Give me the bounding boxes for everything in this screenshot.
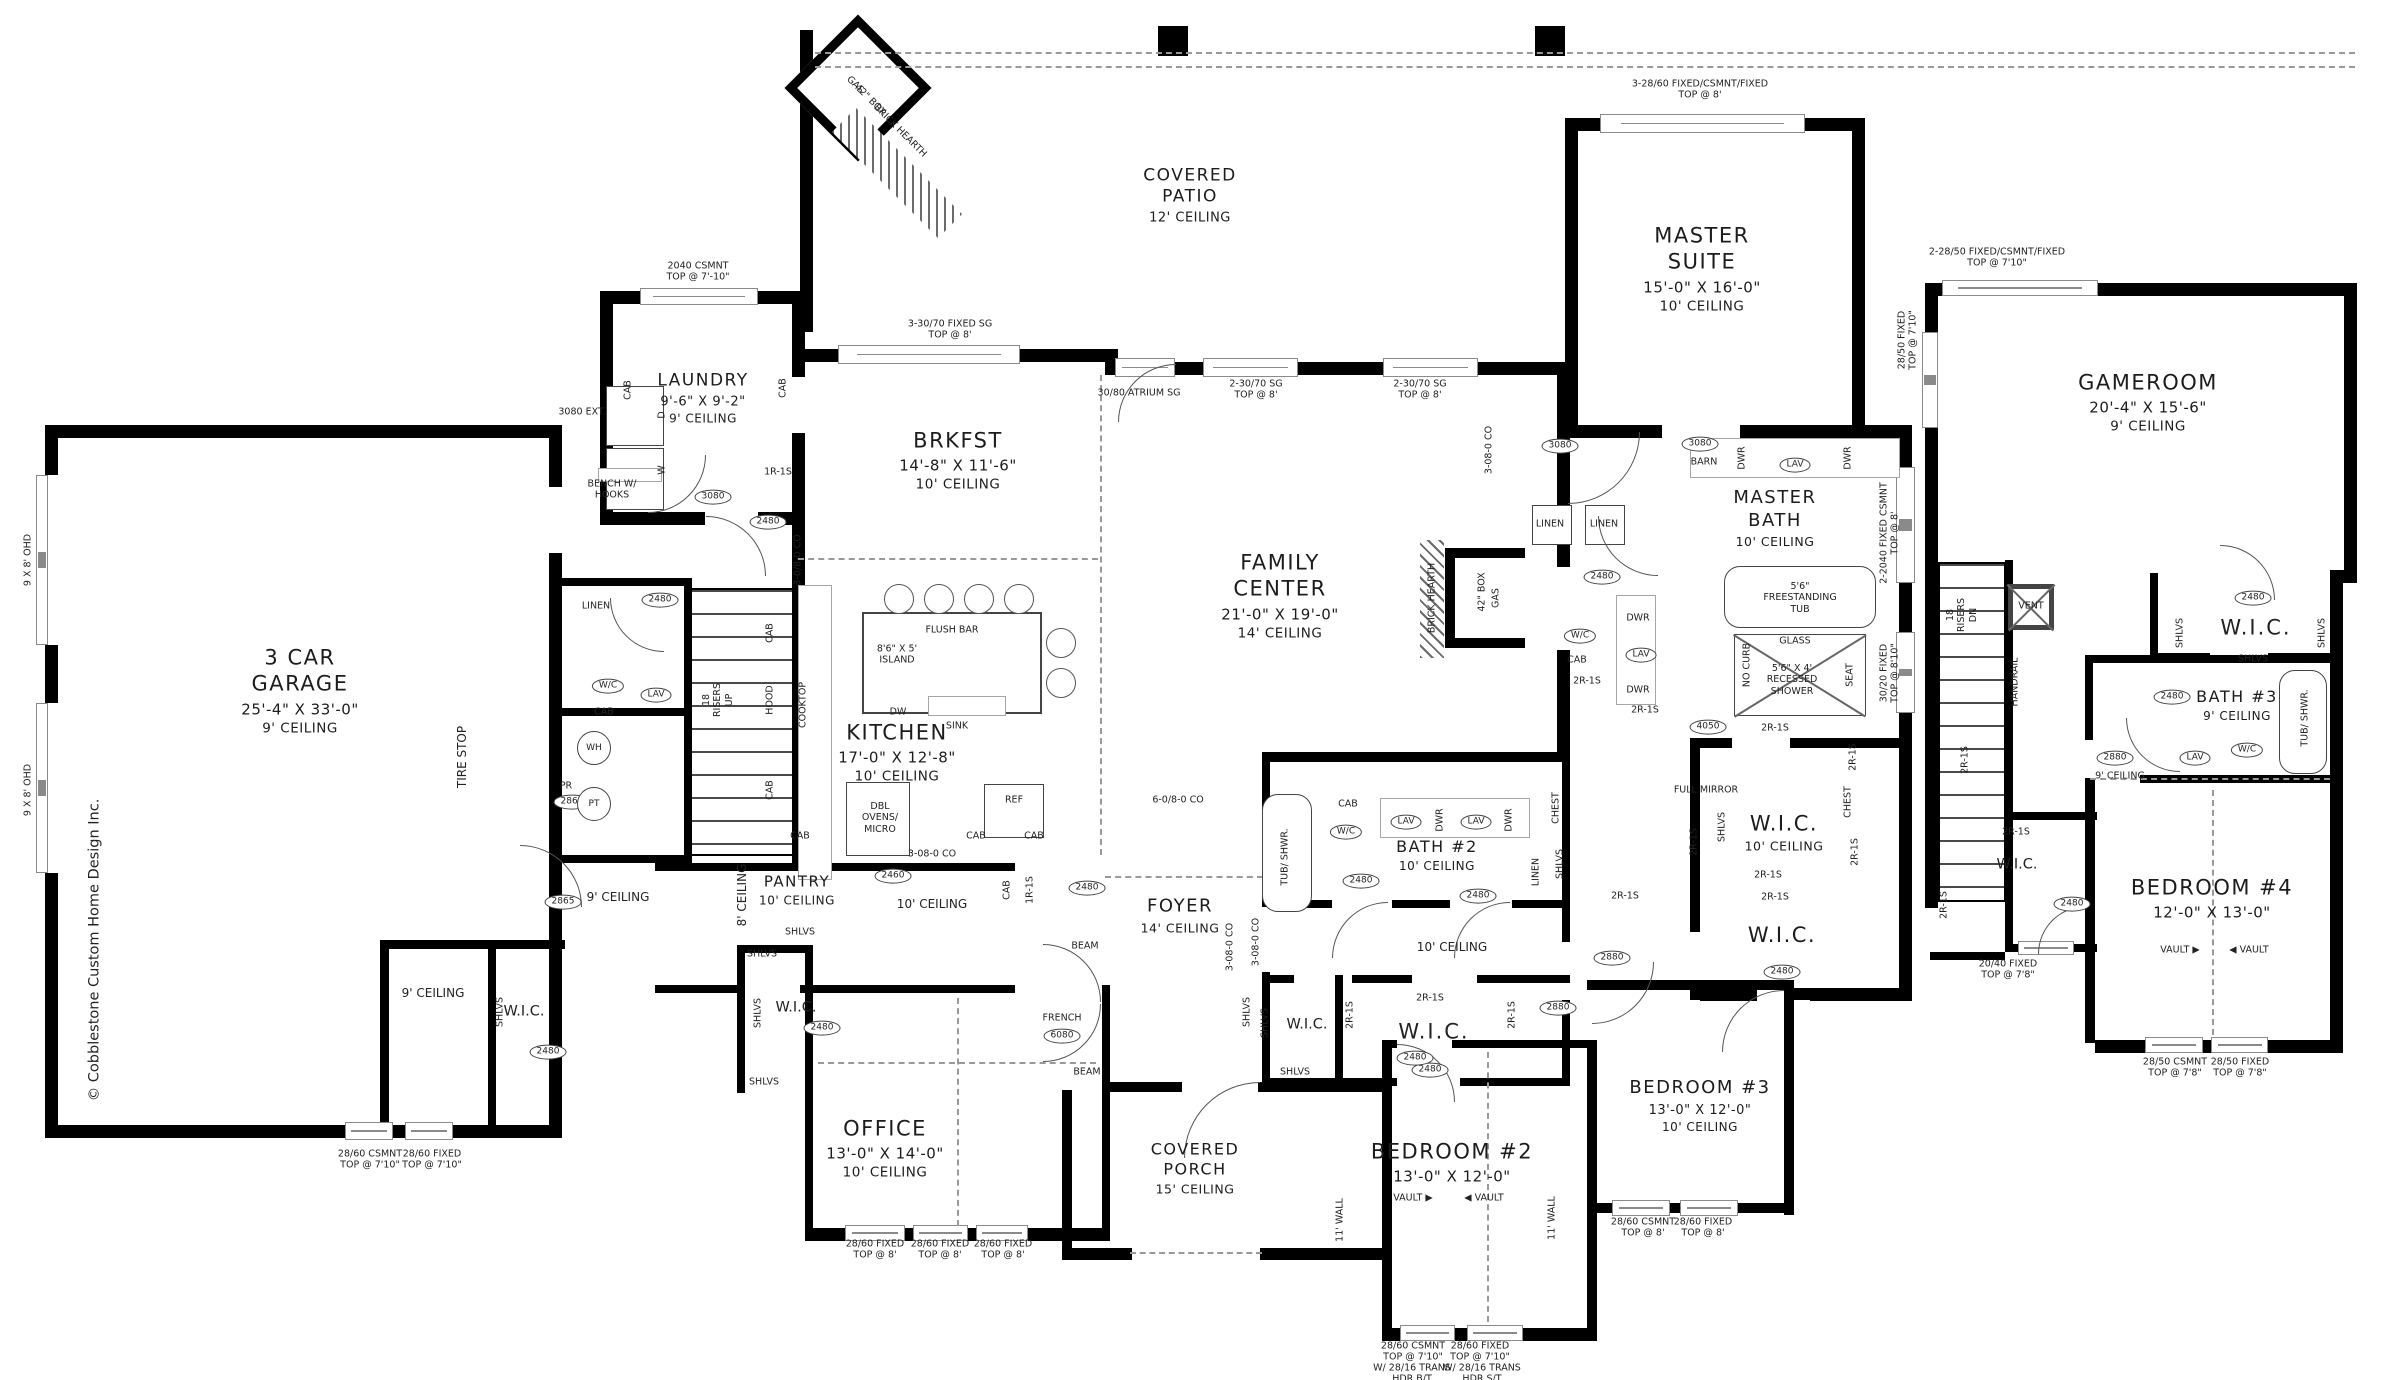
room-name: BEDROOM #4 bbox=[2131, 874, 2293, 900]
annotation: 3-08-0 CO bbox=[1250, 918, 1261, 966]
room-ceiling: 14' CEILING bbox=[1141, 920, 1220, 935]
wall bbox=[45, 425, 562, 438]
room-dims: 14'-8" X 11'-6" bbox=[899, 457, 1016, 475]
room-dims: 9'-6" X 9'-2" bbox=[657, 395, 748, 410]
annotation: 2-30/70 SG TOP @ 8' bbox=[1393, 379, 1446, 402]
room-name: BRKFST bbox=[899, 427, 1016, 453]
garage-door bbox=[36, 703, 48, 873]
room-label-laundry: LAUNDRY 9'-6" X 9'-2" 9' CEILING bbox=[657, 370, 748, 425]
annotation: 2R-1S bbox=[1959, 746, 1970, 774]
wall bbox=[562, 708, 688, 716]
wall bbox=[1102, 1082, 1182, 1092]
annotation: 28/60 FIXED TOP @ 8' bbox=[911, 1239, 970, 1262]
annotation: 3-30/70 FIXED SG TOP @ 8' bbox=[908, 319, 992, 342]
annotation: SHLVS bbox=[1259, 1008, 1270, 1038]
annotation: 9' CEILING bbox=[587, 890, 650, 904]
wall bbox=[45, 645, 58, 703]
wall bbox=[1925, 283, 1938, 332]
annotation: 8' CEILING bbox=[735, 864, 749, 927]
room-dims: 25'-4" X 33'-0" bbox=[241, 700, 358, 718]
room-ceiling: 10' CEILING bbox=[759, 893, 835, 907]
annotation: 3080 bbox=[1682, 437, 1719, 452]
annotation: 28/60 FIXED TOP @ 7'10" bbox=[1450, 1341, 1510, 1364]
wall bbox=[1852, 118, 1865, 430]
annotation: CAB bbox=[1024, 830, 1044, 841]
wall bbox=[655, 863, 1015, 871]
annotation: LINEN bbox=[1590, 518, 1618, 529]
annotation: 2R-1S bbox=[1938, 891, 1949, 919]
annotation: 2R-1S bbox=[1754, 869, 1782, 880]
annotation: 28/60 FIXED TOP @ 7'10" bbox=[402, 1149, 462, 1172]
room-label-garage: 3 CAR GARAGE 25'-4" X 33'-0" 9' CEILING bbox=[241, 644, 358, 736]
room-name: LAUNDRY bbox=[657, 370, 748, 391]
wall bbox=[1262, 752, 1570, 762]
window bbox=[345, 1122, 393, 1140]
wall bbox=[1445, 548, 1455, 648]
annotation: 3080 bbox=[1542, 439, 1579, 454]
wall bbox=[562, 855, 690, 863]
wall bbox=[1925, 483, 1938, 908]
wall bbox=[1460, 1078, 1570, 1086]
annotation: TIRE STOP bbox=[455, 726, 469, 788]
wall bbox=[1587, 1040, 1597, 1338]
room-name: W.I.C. bbox=[1745, 810, 1824, 836]
annotation: SHLVS bbox=[2174, 618, 2185, 648]
annotation: DWR bbox=[1626, 684, 1649, 695]
annotation: 3080 bbox=[695, 490, 732, 505]
annotation: DW bbox=[890, 706, 907, 717]
wall bbox=[1899, 748, 1912, 1000]
annotation: SHLVS bbox=[1280, 1066, 1310, 1077]
wall bbox=[2085, 655, 2093, 740]
ceiling-break bbox=[957, 998, 959, 1226]
annotation: 2480 bbox=[750, 515, 787, 530]
annotation: 28/50 CSMNT TOP @ 7'8" bbox=[2143, 1057, 2207, 1080]
annotation: 2-28/50 FIXED/CSMNT/FIXED TOP @ 7'10" bbox=[1929, 247, 2065, 270]
annotation: 1R-1S bbox=[1024, 876, 1035, 904]
wall bbox=[1738, 1203, 1794, 1213]
porch-opening bbox=[1130, 1252, 1262, 1254]
annotation: 1R-1S bbox=[764, 466, 792, 477]
wall bbox=[600, 291, 645, 304]
floor-plan: 3 CAR GARAGE 25'-4" X 33'-0" 9' CEILING … bbox=[0, 0, 2396, 1380]
annotation: DBL OVENS/ MICRO bbox=[862, 801, 898, 835]
wall bbox=[1260, 1248, 1392, 1260]
annotation: CAB bbox=[594, 706, 614, 717]
window bbox=[1400, 1325, 1455, 1341]
annotation: 2R-1S bbox=[1573, 675, 1601, 686]
annotation: 28/60 FIXED TOP @ 8' bbox=[846, 1239, 905, 1262]
annotation: SHLVS bbox=[752, 998, 763, 1028]
wall bbox=[549, 425, 562, 487]
annotation: CAB bbox=[966, 830, 986, 841]
annotation: 2R-1S bbox=[1847, 743, 1858, 771]
room-dims: 20'-4" X 15'-6" bbox=[2078, 399, 2218, 417]
annotation: 2R-1S bbox=[1849, 838, 1860, 866]
bar-stool bbox=[884, 584, 914, 614]
annotation: 2480 bbox=[1764, 965, 1801, 980]
room-label-brkfst: BRKFST 14'-8" X 11'-6" 10' CEILING bbox=[899, 427, 1016, 492]
wall bbox=[1352, 975, 1412, 983]
annotation: W.I.C. bbox=[1287, 1016, 1328, 1033]
french-door-arc bbox=[1043, 944, 1101, 1002]
annotation: 4050 bbox=[1690, 720, 1727, 735]
annotation: GAS bbox=[1490, 588, 1501, 608]
annotation: W.I.C. bbox=[1398, 1019, 1469, 1044]
washer bbox=[606, 386, 664, 446]
annotation: 18 RISERS UP bbox=[701, 683, 735, 717]
annotation: CHEST bbox=[1842, 786, 1853, 818]
room-name: PANTRY bbox=[759, 873, 835, 892]
wall bbox=[1784, 980, 1794, 1215]
annotation: LINEN bbox=[582, 600, 610, 611]
annotation: W/C bbox=[592, 679, 624, 694]
door-arc bbox=[648, 455, 706, 513]
annotation: 2460 bbox=[875, 869, 912, 884]
annotation: PR bbox=[560, 780, 572, 791]
annotation: SHLVS bbox=[747, 948, 777, 959]
room-name: KITCHEN bbox=[838, 719, 955, 745]
room-name: BEDROOM #3 bbox=[1629, 1077, 1770, 1100]
room-name: FOYER bbox=[1141, 895, 1220, 918]
window bbox=[1600, 114, 1805, 133]
room-ceiling: 10' CEILING bbox=[1396, 859, 1478, 873]
room-name: BEDROOM #2 bbox=[1371, 1138, 1533, 1164]
annotation: 30/80 ATRIUM SG bbox=[1098, 387, 1181, 398]
room-ceiling: 10' CEILING bbox=[826, 1165, 943, 1181]
annotation: LAV bbox=[641, 688, 672, 703]
wall bbox=[1335, 975, 1343, 1085]
annotation: 10' CEILING bbox=[1417, 940, 1487, 954]
annotation: W.I.C. bbox=[504, 1003, 545, 1020]
window bbox=[1467, 1325, 1523, 1341]
room-name: FAMILY CENTER bbox=[1221, 549, 1338, 602]
annotation: SHLVS bbox=[2238, 653, 2268, 664]
annotation: FLUSH BAR bbox=[925, 624, 978, 635]
annotation: W.I.C. bbox=[1997, 856, 2038, 873]
annotation: VAULT ▶ bbox=[1393, 1192, 1432, 1203]
room-label-bath2: BATH #2 10' CEILING bbox=[1396, 837, 1478, 873]
room-name: GAMEROOM bbox=[2078, 369, 2218, 395]
wall bbox=[800, 985, 1015, 993]
annotation: 2R-1S bbox=[2002, 826, 2030, 837]
room-ceiling: 10' CEILING bbox=[1629, 1119, 1770, 1133]
annotation: 2R-1S bbox=[1611, 890, 1639, 901]
annotation: CAB bbox=[777, 378, 788, 398]
wall bbox=[1258, 1082, 1392, 1092]
wall bbox=[600, 512, 705, 525]
annotation: VAULT ▶ bbox=[2160, 944, 2199, 955]
annotation: SEAT bbox=[1844, 663, 1855, 687]
bar-stool bbox=[964, 584, 994, 614]
wall bbox=[380, 940, 389, 1130]
annotation: 2480 bbox=[804, 1021, 841, 1036]
window bbox=[838, 345, 1020, 364]
door-arc bbox=[2038, 906, 2086, 954]
wall bbox=[2344, 283, 2357, 578]
wall bbox=[1445, 548, 1525, 558]
annotation: 2865 bbox=[545, 895, 582, 910]
annotation: 5'6" X 4' RECESSED SHOWER bbox=[1767, 663, 1818, 697]
annotation: BEAM bbox=[1073, 1066, 1100, 1077]
annotation: 2480 bbox=[530, 1045, 567, 1060]
room-label-pantry: PANTRY 10' CEILING bbox=[759, 873, 835, 908]
annotation: 2480 bbox=[1343, 874, 1380, 889]
room-name: 3 CAR GARAGE bbox=[241, 644, 358, 697]
wall bbox=[2150, 573, 2158, 661]
annotation: 2480 bbox=[2154, 690, 2191, 705]
wall bbox=[45, 873, 58, 1138]
wall bbox=[2150, 653, 2210, 661]
annotation: TUB/ SHWR. bbox=[1279, 828, 1290, 885]
room-label-patio: COVERED PATIO 12' CEILING bbox=[1143, 165, 1236, 225]
room-ceiling: 9' CEILING bbox=[657, 412, 748, 426]
window bbox=[405, 1122, 453, 1140]
vault-line bbox=[1487, 1052, 1489, 1322]
garage-door bbox=[36, 475, 48, 645]
annotation: 2R-1S bbox=[1631, 704, 1659, 715]
annotation: 2040 CSMNT TOP @ 7'-10" bbox=[666, 261, 729, 284]
room-name: MASTER SUITE bbox=[1643, 222, 1760, 275]
annotation: LAV bbox=[1780, 458, 1811, 473]
annotation: 10' CEILING bbox=[897, 897, 967, 911]
annotation: 28/60 FIXED TOP @ 8' bbox=[1674, 1217, 1733, 1240]
wall bbox=[380, 940, 565, 949]
annotation: W/C bbox=[1330, 825, 1362, 840]
annotation: 18 RISERS DN bbox=[1945, 598, 1979, 632]
room-label-bed2: BEDROOM #2 13'-0" X 12'-0" bbox=[1371, 1138, 1533, 1185]
room-name: BATH #3 bbox=[2196, 687, 2278, 707]
annotation: SHLVS bbox=[1241, 997, 1252, 1027]
window bbox=[1942, 280, 2098, 296]
wall bbox=[805, 945, 813, 1235]
wall bbox=[2268, 653, 2330, 661]
annotation: D bbox=[656, 411, 667, 418]
room-ceiling: 12' CEILING bbox=[1143, 210, 1236, 225]
room-name: BATH #2 bbox=[1396, 837, 1478, 857]
wall bbox=[1587, 1203, 1614, 1213]
annotation: DWR bbox=[1626, 612, 1649, 623]
wall bbox=[1740, 425, 1912, 438]
room-ceiling: 10' CEILING bbox=[838, 769, 955, 785]
window bbox=[1383, 358, 1478, 377]
annotation: LAV bbox=[1391, 815, 1422, 830]
wall bbox=[45, 1125, 562, 1138]
window bbox=[1612, 1200, 1670, 1216]
annotation: © Cobblestone Custom Home Design Inc. bbox=[86, 799, 103, 1102]
annotation: ◀ VAULT bbox=[1464, 1192, 1503, 1203]
annotation: W/ 28/16 TRANS HDR B/T bbox=[1373, 1363, 1451, 1380]
annotation: FRENCH bbox=[1043, 1012, 1082, 1023]
annotation: SHLVS bbox=[749, 1076, 779, 1087]
room-ceiling: 9' CEILING bbox=[2196, 709, 2278, 723]
annotation: 5'6" FREESTANDING TUB bbox=[1763, 581, 1836, 615]
annotation: 8'6" X 5' ISLAND bbox=[877, 644, 917, 667]
room-ceiling: 10' CEILING bbox=[1643, 298, 1760, 314]
room-label-foyer: FOYER 14' CEILING bbox=[1141, 895, 1220, 935]
room-label-bath3: BATH #3 9' CEILING bbox=[2196, 687, 2278, 723]
annotation: 2480 bbox=[1397, 1051, 1434, 1066]
ceiling-break bbox=[1100, 375, 1102, 855]
annotation: W/ 28/16 TRANS HDR S/T bbox=[1443, 1363, 1521, 1380]
wall bbox=[1562, 752, 1570, 942]
annotation: LINEN bbox=[1536, 518, 1564, 529]
room-label-masterbath: MASTER BATH 10' CEILING bbox=[1733, 487, 1816, 549]
annotation: WH bbox=[577, 731, 611, 765]
wall bbox=[1453, 1328, 1467, 1341]
patio-edge-dashed bbox=[815, 66, 2355, 68]
annotation: 2R-1S bbox=[1688, 828, 1699, 856]
patio-edge-dashed bbox=[815, 52, 2355, 54]
window bbox=[1203, 358, 1298, 377]
annotation: DWR bbox=[1434, 808, 1445, 831]
door-arc bbox=[2126, 718, 2180, 772]
annotation: 2480 bbox=[1584, 570, 1621, 585]
room-name: COVERED PORCH bbox=[1151, 1140, 1240, 1180]
annotation: 2R-1S bbox=[1416, 992, 1444, 1003]
annotation: 11' WALL bbox=[1546, 1196, 1557, 1240]
bar-stool bbox=[1046, 628, 1076, 658]
wall bbox=[1477, 975, 1570, 983]
wall bbox=[1173, 362, 1207, 375]
annotation: 2-30/70 SG TOP @ 8' bbox=[1229, 379, 1282, 402]
annotation: 2R-1S bbox=[1761, 722, 1789, 733]
annotation: SHLVS bbox=[2316, 618, 2327, 648]
annotation: GLASS bbox=[1779, 635, 1810, 646]
window bbox=[2211, 1037, 2268, 1053]
annotation: 2880 bbox=[1540, 1001, 1577, 1016]
annotation: 9' CEILING bbox=[402, 986, 465, 1000]
wall bbox=[1899, 583, 1912, 632]
annotation: 11' WALL bbox=[1334, 1198, 1345, 1242]
wall bbox=[2330, 570, 2343, 1053]
room-label-gameroom: GAMEROOM 20'-4" X 15'-6" 9' CEILING bbox=[2078, 369, 2218, 434]
room-ceiling: 10' CEILING bbox=[1745, 839, 1824, 854]
room-name: OFFICE bbox=[826, 1115, 943, 1141]
annotation: HOOD bbox=[764, 685, 775, 714]
annotation: 9 X 8' OHD bbox=[22, 534, 33, 586]
room-label-masterwic2: W.I.C. bbox=[1748, 922, 1816, 948]
window bbox=[2145, 1037, 2203, 1053]
annotation: 3-28/60 FIXED/CSMNT/FIXED TOP @ 8' bbox=[1632, 79, 1768, 102]
annotation: 9' CEILING bbox=[2095, 770, 2145, 781]
annotation: 2480 bbox=[642, 593, 679, 608]
annotation: SHLVS bbox=[1554, 849, 1565, 879]
annotation: W.I.C. bbox=[2220, 615, 2291, 640]
room-label-master: MASTER SUITE 15'-0" X 16'-0" 10' CEILING bbox=[1643, 222, 1760, 314]
bar-stool bbox=[924, 584, 954, 614]
wall bbox=[1478, 362, 1570, 375]
annotation: 3-08-0 CO bbox=[1224, 923, 1235, 971]
annotation: W bbox=[656, 465, 667, 474]
annotation: 3-0/8-0 CO bbox=[792, 534, 803, 585]
room-label-masterwic: W.I.C. 10' CEILING bbox=[1745, 810, 1824, 853]
annotation: 2R-1S bbox=[1506, 1001, 1517, 1029]
annotation: 2480 bbox=[1069, 881, 1106, 896]
annotation: LAV bbox=[1461, 815, 1492, 830]
annotation: 20/40 FIXED TOP @ 7'8" bbox=[1979, 959, 2038, 982]
annotation: SHLVS bbox=[494, 997, 505, 1027]
annotation: 28/60 CSMNT TOP @ 7'10" bbox=[1381, 1341, 1445, 1364]
room-label-bed3: BEDROOM #3 13'-0" X 12'-0" 10' CEILING bbox=[1629, 1077, 1770, 1134]
annotation: CAB bbox=[790, 830, 810, 841]
wall bbox=[737, 945, 745, 1093]
room-dims: 13'-0" X 14'-0" bbox=[826, 1145, 943, 1163]
room-label-bed4: BEDROOM #4 12'-0" X 13'-0" bbox=[2131, 874, 2293, 921]
kitchen-sink bbox=[928, 696, 1006, 716]
annotation: 6-0/8-0 CO bbox=[1152, 794, 1203, 805]
annotation: 30/20 FIXED TOP @ 8'10" bbox=[1879, 643, 1902, 703]
annotation: HANDRAIL bbox=[2009, 658, 2020, 707]
wall bbox=[1565, 118, 1578, 430]
door-arc bbox=[1592, 962, 1654, 1024]
annotation: 9 X 8' OHD bbox=[22, 764, 33, 816]
annotation: SINK bbox=[946, 720, 968, 731]
wall bbox=[1899, 430, 1912, 467]
wall bbox=[1445, 638, 1525, 648]
annotation: ◀ VAULT bbox=[2229, 944, 2268, 955]
wall bbox=[1382, 1328, 1402, 1341]
annotation: CAB bbox=[1338, 798, 1358, 809]
room-dims: 12'-0" X 13'-0" bbox=[2131, 904, 2293, 922]
annotation: VENT bbox=[2018, 600, 2043, 611]
annotation: 2R-1S bbox=[1344, 1001, 1355, 1029]
wall bbox=[805, 1228, 847, 1241]
room-dims: 15'-0" X 16'-0" bbox=[1643, 278, 1760, 296]
wall bbox=[1298, 362, 1387, 375]
annotation: DWR bbox=[1842, 446, 1853, 469]
annotation: 2880 bbox=[2097, 751, 2134, 766]
room-name: COVERED PATIO bbox=[1143, 165, 1236, 208]
wall bbox=[1062, 1090, 1072, 1258]
room-label-family: FAMILY CENTER 21'-0" X 19'-0" 14' CEILIN… bbox=[1221, 549, 1338, 641]
bar-stool bbox=[1046, 668, 1076, 698]
annotation: LINEN bbox=[1530, 858, 1541, 886]
ceiling-break bbox=[798, 558, 1098, 560]
annotation: 2480 bbox=[1460, 889, 1497, 904]
stairs-up bbox=[690, 588, 794, 856]
annotation: DWR bbox=[1503, 808, 1514, 831]
wall bbox=[2268, 1040, 2343, 1053]
annotation: NO CURB bbox=[1741, 643, 1752, 687]
annotation: 28/60 CSMNT TOP @ 7'10" bbox=[338, 1149, 402, 1172]
room-dims: 13'-0" X 12'-0" bbox=[1629, 1102, 1770, 1117]
wall bbox=[488, 949, 496, 1129]
room-name: MASTER BATH bbox=[1733, 487, 1816, 532]
wall bbox=[1102, 985, 1110, 1235]
room-ceiling: 9' CEILING bbox=[2078, 419, 2218, 435]
annotation: 2-2040 FIXED CSMNT TOP @ 8' bbox=[1879, 482, 1902, 584]
annotation: FULL MIRROR bbox=[1674, 784, 1738, 795]
door-arc bbox=[1568, 432, 1640, 504]
annotation: W.I.C. bbox=[776, 999, 817, 1016]
window bbox=[640, 288, 758, 305]
wall bbox=[2098, 283, 2357, 296]
annotation: 28/60 CSMNT TOP @ 8' bbox=[1611, 1217, 1675, 1240]
door-arc bbox=[1332, 902, 1388, 958]
annotation: REF bbox=[1005, 794, 1023, 805]
wall bbox=[1925, 428, 1938, 485]
room-ceiling: 9' CEILING bbox=[241, 720, 358, 736]
annotation: LAV bbox=[2180, 751, 2211, 766]
annotation: COOKTOP bbox=[797, 682, 808, 728]
annotation: 28/60 FIXED TOP @ 8' bbox=[974, 1239, 1033, 1262]
annotation: W/C bbox=[1564, 629, 1596, 644]
room-dims: 21'-0" X 19'-0" bbox=[1221, 605, 1338, 623]
wall bbox=[2005, 812, 2097, 820]
annotation: 2880 bbox=[1594, 951, 1631, 966]
room-label-office: OFFICE 13'-0" X 14'-0" 10' CEILING bbox=[826, 1115, 943, 1180]
